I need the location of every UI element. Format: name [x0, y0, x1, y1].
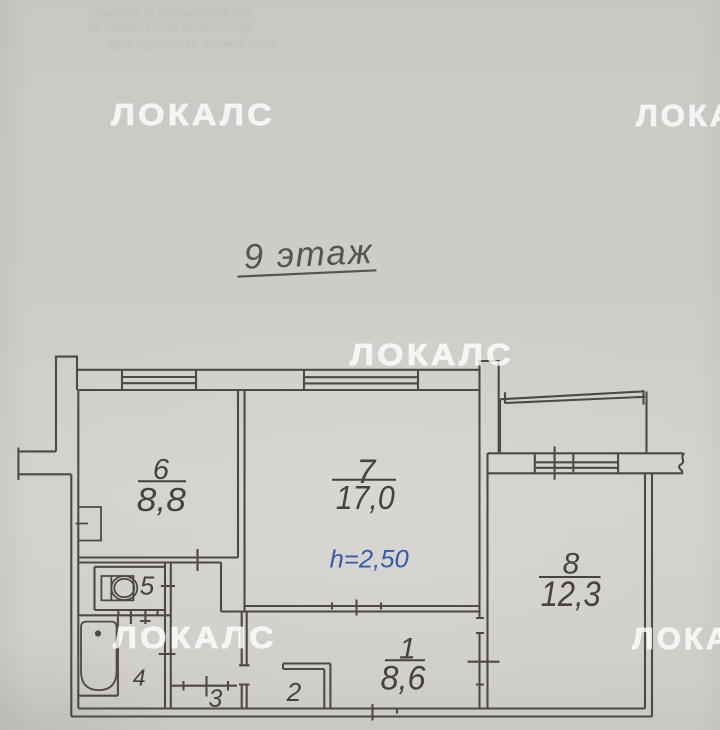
svg-text:ЛОКАЛС: ЛОКАЛС: [350, 337, 514, 372]
svg-text:ЛОКАЛС: ЛОКАЛС: [632, 621, 720, 656]
svg-text:ЛОКАЛС: ЛОКАЛС: [113, 620, 277, 655]
svg-text:ЛОКАЛС: ЛОКАЛС: [111, 97, 275, 132]
svg-text:3: 3: [209, 685, 223, 713]
svg-text:№ 125/2014 от 03.02.2014 г. се: № 125/2014 от 03.02.2014 г. сер.: [89, 22, 254, 34]
svg-text:12,3: 12,3: [541, 575, 601, 614]
svg-text:5: 5: [140, 570, 155, 600]
svg-text:8,6: 8,6: [381, 660, 426, 698]
svg-text:Дом серии П-44, этажей — 10: Дом серии П-44, этажей — 10: [109, 37, 276, 51]
svg-text:ЛОКАЛС: ЛОКАЛС: [636, 98, 720, 133]
svg-text:h=2,50: h=2,50: [330, 546, 409, 574]
svg-text:17,0: 17,0: [336, 479, 396, 516]
svg-text:8,8: 8,8: [137, 481, 187, 518]
svg-text:4: 4: [133, 665, 146, 691]
svg-text:9 этаж: 9 этаж: [243, 232, 375, 277]
svg-text:2: 2: [286, 677, 302, 707]
svg-text:Выписка из техпаспорта пом.: Выписка из техпаспорта пом.: [96, 7, 255, 19]
